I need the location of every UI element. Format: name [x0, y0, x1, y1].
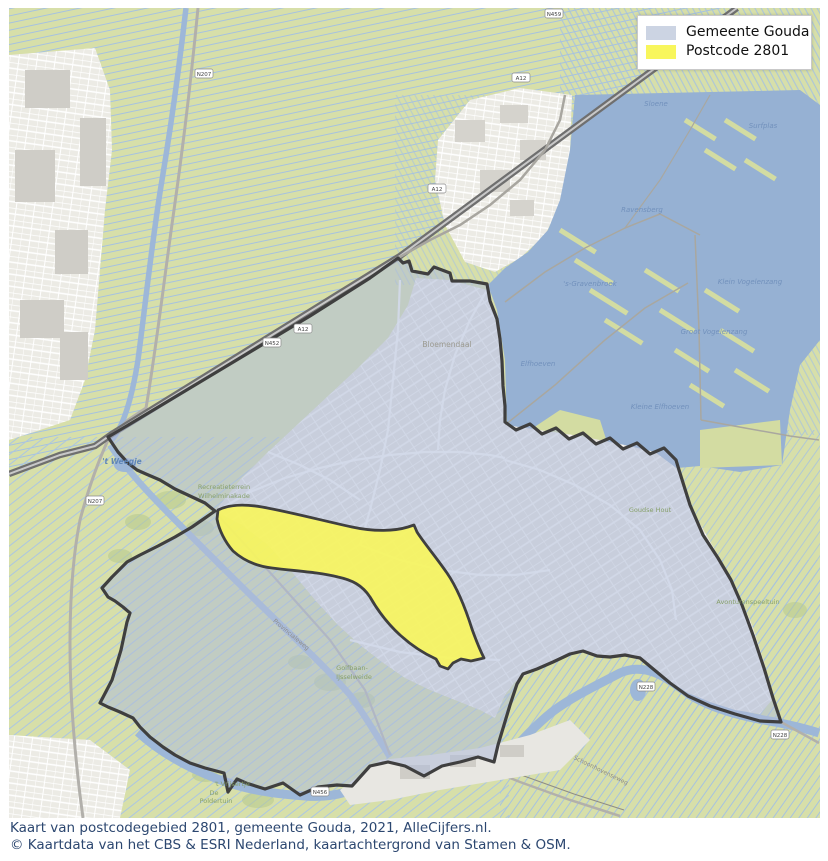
- road-shield-label: N207: [197, 72, 212, 78]
- legend-item: Postcode 2801: [646, 43, 803, 60]
- map-label: Avonturenspeeltuin: [716, 598, 779, 606]
- road-shield: N228: [637, 682, 655, 691]
- legend-swatch: [646, 26, 676, 40]
- map-label: 's-Gravenbroek: [563, 280, 617, 288]
- map-label: Goudse Hout: [629, 506, 672, 514]
- map-label: Surfplas: [749, 122, 778, 130]
- map-label: Groot Vogelenzang: [681, 328, 748, 336]
- map-legend: Gemeente GoudaPostcode 2801: [637, 15, 812, 70]
- road-shield: A12: [428, 184, 446, 193]
- map-caption: Kaart van postcodegebied 2801, gemeente …: [10, 820, 571, 853]
- road-shield-label: N459: [547, 12, 562, 18]
- caption-line-1: Kaart van postcodegebied 2801, gemeente …: [10, 820, 571, 837]
- road-shield-label: N228: [773, 733, 788, 739]
- map-label: IJsselweide: [336, 673, 372, 681]
- road-shield-label: A12: [432, 187, 443, 193]
- road-shield-label: N456: [313, 790, 328, 796]
- map-label: 't Weegje: [102, 457, 142, 466]
- map-label: Golfbaan-: [336, 664, 368, 672]
- map-label: Elfhoeven: [521, 360, 556, 368]
- legend-label: Postcode 2801: [686, 43, 789, 60]
- road-shield-label: N207: [88, 499, 103, 505]
- legend-item: Gemeente Gouda: [646, 24, 803, 41]
- road-shield-label: N452: [265, 341, 280, 347]
- map-label: Sloene: [644, 100, 668, 108]
- map-label: Poldertuin: [200, 797, 233, 805]
- map-label: Recreatieterrein: [198, 483, 250, 491]
- road-shield: N207: [86, 496, 104, 505]
- map-page: Bloemendaal't WeegjeRecreatieterreinWilh…: [0, 0, 828, 861]
- map-label: Klein Vogelenzang: [718, 278, 783, 286]
- road-shield: N228: [771, 730, 789, 739]
- road-shield-label: N228: [639, 685, 654, 691]
- road-shield: N207: [195, 69, 213, 78]
- legend-swatch: [646, 45, 676, 59]
- map-canvas: Bloemendaal't WeegjeRecreatieterreinWilh…: [9, 8, 820, 818]
- road-shield: N452: [263, 338, 281, 347]
- road-shield: N459: [545, 9, 563, 18]
- road-shield: A12: [294, 324, 312, 333]
- map-label: De: [209, 789, 218, 797]
- map-label: Wilhelminakade: [198, 492, 250, 500]
- road-shield: N456: [311, 787, 329, 796]
- map-label: 't Vrijsertje: [214, 780, 250, 788]
- road-shield: A12: [512, 73, 530, 82]
- map-label: Ravensberg: [621, 206, 663, 214]
- caption-line-2: © Kaartdata van het CBS & ESRI Nederland…: [10, 837, 571, 854]
- map-label: Bloemendaal: [422, 340, 471, 349]
- road-shield-label: A12: [516, 76, 527, 82]
- road-shield-label: A12: [298, 327, 309, 333]
- map-label: Kleine Elfhoeven: [631, 403, 690, 411]
- legend-label: Gemeente Gouda: [686, 24, 810, 41]
